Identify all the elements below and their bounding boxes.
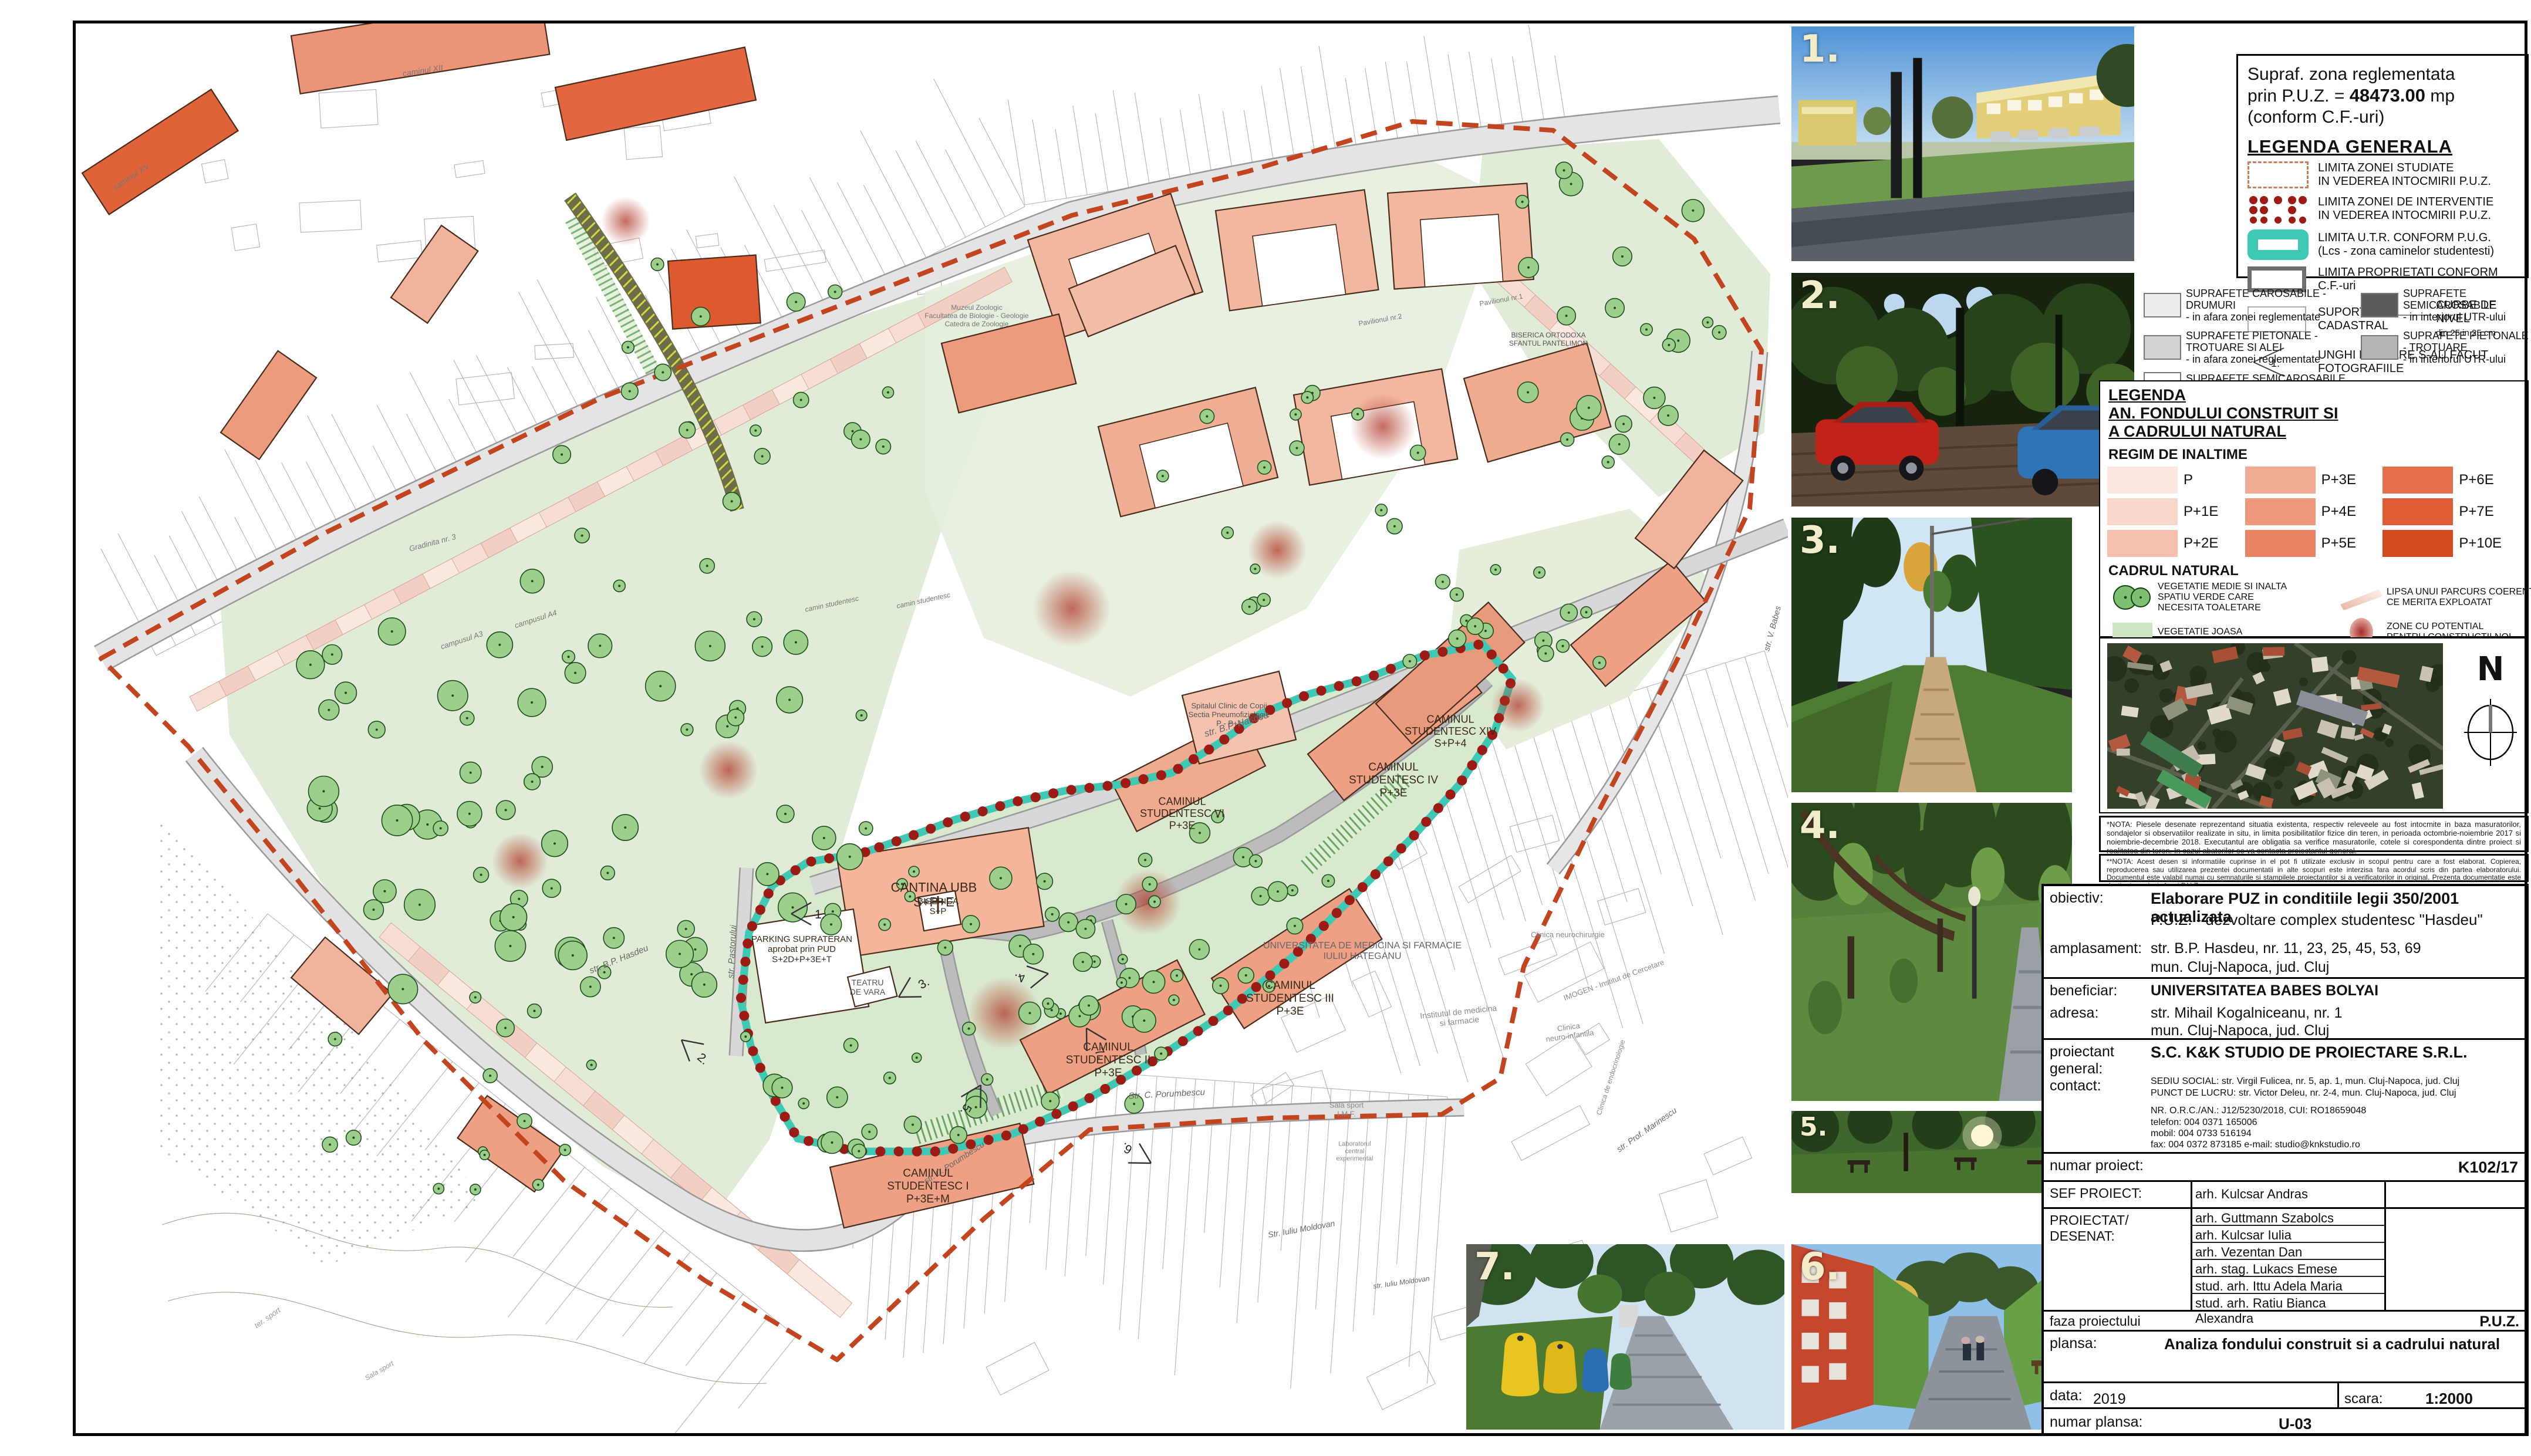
svg-text:DE VARA: DE VARA (850, 987, 886, 996)
area-value: 48473.00 (2350, 85, 2425, 106)
missing-path-icon (2336, 585, 2387, 610)
svg-text:CAMINUL: CAMINUL (1426, 713, 1474, 725)
team-member: arh. Kulcsar Iulia (2191, 1226, 2384, 1243)
adresa-value-1: str. Mihail Kogalniceanu, nr. 1 (2151, 1005, 2343, 1022)
photo-4: 4. (1791, 803, 2072, 1101)
map-label: BISERICA ORTODOXASFANTUL PANTELIMON (1509, 331, 1588, 347)
trees-icon (2107, 583, 2158, 612)
svg-text:IULIU HATEGANU: IULIU HATEGANU (1323, 951, 1401, 961)
faza-label: faza proiectului (2050, 1313, 2141, 1329)
sef-proiect-value: arh. Kulcsar Andras (2195, 1187, 2308, 1202)
photo-number: 4. (1800, 804, 1840, 847)
svg-text:Spitalul Clinic de Copii: Spitalul Clinic de Copii (1191, 701, 1267, 710)
proiectant-value: S.C. K&K STUDIO DE PROIECTARE S.R.L. (2151, 1043, 2468, 1062)
photo-2: 2. (1791, 273, 2134, 506)
svg-text:central: central (1345, 1148, 1364, 1155)
photo-number: 6. (1800, 1245, 1840, 1289)
svg-text:CAMINUL: CAMINUL (1158, 795, 1206, 807)
map-label: TEATRUDE VARA (850, 978, 886, 996)
surface-pietonale-interior: SUPRAFETE PIETONALE - TROTUARE- in inter… (2361, 330, 2529, 365)
legend-general-title: LEGENDA GENERALA (2238, 130, 2527, 158)
team-member: arh. Guttmann Szabolcs (2191, 1209, 2384, 1226)
svg-text:UNIVERSITATEA DE MEDICINA SI F: UNIVERSITATEA DE MEDICINA SI FARMACIE (1263, 941, 1462, 951)
team-member: arh. Vezentan Dan (2191, 1243, 2384, 1260)
puz-sheet: { "colors":{"study_boundary":"#c2451f","… (0, 0, 2531, 1456)
svg-text:STUDENTESC II: STUDENTESC II (1066, 1054, 1151, 1066)
svg-text:Muzeul Zoologic: Muzeul Zoologic (951, 303, 1002, 312)
utr-teal-icon (2247, 229, 2318, 260)
dashed-boundary-icon (2247, 161, 2318, 188)
surface-semicarosabile-interior: SUPRAFETE SEMICAROSABILE- in interiorul … (2361, 288, 2529, 323)
svg-text:CAMINUL: CAMINUL (1265, 979, 1315, 992)
scara-label: scara: (2344, 1391, 2382, 1407)
red-dots-icon (2247, 194, 2318, 224)
faza-value: P.U.Z. (2479, 1313, 2519, 1330)
numar-proiect-label: numar proiect: (2050, 1157, 2144, 1174)
beneficiar-value: UNIVERSITATEA BABES BOLYAI (2151, 982, 2378, 999)
adresa-value-2: mun. Cluj-Napoca, jud. Cluj (2151, 1022, 2329, 1039)
aerial-photo (2107, 643, 2443, 809)
team-member: arh. stag. Lukacs Emese (2191, 1260, 2384, 1277)
svg-text:P+3E: P+3E (1094, 1067, 1122, 1079)
svg-text:STUDENTESC III: STUDENTESC III (1246, 992, 1334, 1005)
amplasament-value-2: mun. Cluj-Napoca, jud. Cluj (2151, 959, 2329, 976)
svg-text:BISERICA: BISERICA (917, 896, 959, 906)
svg-text:Catedra de Zoologie: Catedra de Zoologie (945, 320, 1009, 328)
photo-1: 1. (1791, 26, 2134, 261)
numar-plansa-label: numar plansa: (2050, 1414, 2142, 1431)
legend-fond-construit-box: LEGENDAAN. FONDULUI CONSTRUIT SIA CADRUL… (2099, 380, 2529, 637)
beneficiar-label: beneficiar: (2050, 982, 2117, 999)
adresa-label: adresa: (2050, 1005, 2098, 1022)
proiectant-label: proiectantgeneral: (2050, 1043, 2114, 1077)
nota-2: **NOTA: Acest desen si informatiile cupr… (2099, 854, 2529, 882)
nota-1: *NOTA: Piesele desenate reprezentand sit… (2099, 816, 2529, 852)
team-member: stud. arh. Ratiu Bianca Alexandra (2191, 1294, 2384, 1311)
surface-pietonale-afara: SUPRAFETE PIETONALE - TROTUARE SI ALEI- … (2144, 330, 2361, 365)
svg-text:I.M.F.: I.M.F. (1337, 1109, 1356, 1118)
regim-inaltime-title: REGIM DE INALTIME (2100, 442, 2527, 463)
amplasament-label: amplasament: (2050, 940, 2142, 957)
photo-number: 3. (1800, 519, 1840, 562)
numar-proiect-value: K102/17 (2458, 1158, 2518, 1177)
data-label: data: (2050, 1387, 2083, 1404)
legend2-title: LEGENDAAN. FONDULUI CONSTRUIT SIA CADRUL… (2100, 381, 2527, 442)
obiectiv-label: obiectiv: (2050, 890, 2104, 907)
contact-label: contact: (2050, 1077, 2101, 1094)
photo-7: 7. (1466, 1244, 1784, 1430)
svg-text:BISERICA ORTODOXA: BISERICA ORTODOXA (1511, 331, 1586, 339)
north-label: N (2458, 650, 2523, 688)
svg-text:TEATRU: TEATRU (852, 978, 884, 987)
photo-number: 2. (1800, 274, 1840, 317)
svg-text:aprobat prin PUD: aprobat prin PUD (768, 944, 836, 954)
plansa-label: plansa: (2050, 1335, 2097, 1352)
svg-text:STUDENTESC XIV: STUDENTESC XIV (1405, 725, 1496, 737)
svg-text:Clinica neurochirurgie: Clinica neurochirurgie (1531, 930, 1605, 939)
svg-text:CAMINUL: CAMINUL (1368, 761, 1419, 773)
regim-inaltime-grid: P P+3E P+6E P+1E P+4E P+7E P+2E P+5E P+1… (2100, 463, 2527, 560)
regulated-area-text: Supraf. zona reglementata prin P.U.Z. = … (2238, 56, 2527, 130)
legend-item-limita-studiata: LIMITA ZONEI STUDIATEIN VEDEREA INTOCMIR… (2238, 158, 2527, 191)
legend-item-limita-utr: LIMITA U.T.R. CONFORM P.U.G.(Lcs - zona … (2238, 227, 2527, 263)
cadrul-natural-title: CADRUL NATURAL (2100, 560, 2527, 580)
data-value: 2019 (2093, 1391, 2126, 1408)
photo-3: 3. (1791, 518, 2072, 792)
photo-5: 5. (1791, 1111, 2072, 1193)
svg-text:Sala sport: Sala sport (1329, 1101, 1364, 1110)
svg-text:S+P: S+P (930, 907, 947, 917)
svg-text:CANTINA UBB: CANTINA UBB (891, 880, 977, 894)
legend-general-box: Supraf. zona reglementata prin P.U.Z. = … (2236, 54, 2529, 278)
photo-number: 5. (1800, 1112, 1827, 1142)
svg-text:P+3E+M: P+3E+M (906, 1193, 950, 1205)
svg-text:experimental: experimental (1337, 1156, 1374, 1163)
svg-text:1.: 1. (815, 908, 825, 921)
svg-text:Laboratorul: Laboratorul (1338, 1140, 1371, 1147)
numar-plansa-value: U-03 (2279, 1415, 2311, 1433)
obiectiv-value-2: P.U.Z. - dezvoltare complex studentesc "… (2151, 911, 2483, 929)
compass-icon (2458, 688, 2523, 776)
proiectat-label: PROIECTAT/DESENAT: (2050, 1212, 2129, 1244)
site-plan-map: CANTINA UBBS+P+EPARKING SUPRATERANaproba… (74, 22, 1788, 1435)
svg-text:STUDENTESC VI: STUDENTESC VI (1140, 808, 1224, 819)
svg-text:CAMINUL: CAMINUL (1083, 1041, 1133, 1053)
svg-text:S+2D+P+3E+T: S+2D+P+3E+T (772, 954, 832, 964)
photo-number: 1. (1800, 28, 1840, 71)
svg-text:P+3E: P+3E (1169, 820, 1196, 832)
north-compass: N (2458, 650, 2523, 791)
cn-vegetatie-inalta: VEGETATIE MEDIE SI INALTASPATIU VERDE CA… (2107, 582, 2336, 613)
svg-text:S+P+4: S+P+4 (1434, 738, 1466, 749)
svg-text:STUDENTESC IV: STUDENTESC IV (1349, 774, 1438, 786)
legend-item-limita-interventie: LIMITA ZONEI DE INTERVENTIEIN VEDEREA IN… (2238, 191, 2527, 227)
amplasament-value-1: str. B.P. Hasdeu, nr. 11, 23, 25, 45, 53… (2151, 940, 2421, 957)
title-block: obiectiv: Elaborare PUZ in conditiile le… (2041, 884, 2529, 1436)
svg-text:PARKING SUPRATERAN: PARKING SUPRATERAN (751, 934, 852, 944)
photo-number: 7. (1474, 1245, 1515, 1289)
svg-text:P+3E: P+3E (1276, 1005, 1304, 1018)
surface-carosabile-afara: SUPRAFETE CAROSABILE - DRUMURI- in afara… (2144, 288, 2361, 323)
svg-text:P+3E: P+3E (1379, 787, 1407, 799)
sef-proiect-label: SEF PROIECT: (2050, 1185, 2142, 1201)
svg-text:SFANTUL PANTELIMON: SFANTUL PANTELIMON (1509, 339, 1588, 347)
svg-text:Facultatea de Biologie - Geolo: Facultatea de Biologie - Geologie (924, 312, 1029, 320)
aerial-photo-box: N (2099, 637, 2529, 813)
team-member: stud. arh. Ittu Adela Maria (2191, 1277, 2384, 1294)
map-label: Clinica neurochirurgie (1531, 930, 1605, 939)
scara-value: 1:2000 (2425, 1390, 2473, 1408)
plansa-value: Analiza fondului construit si a cadrului… (2164, 1335, 2500, 1353)
cn-lipsa-parcurs: LIPSA UNUI PARCURS COERENT,CE MERITA EXP… (2336, 582, 2531, 613)
